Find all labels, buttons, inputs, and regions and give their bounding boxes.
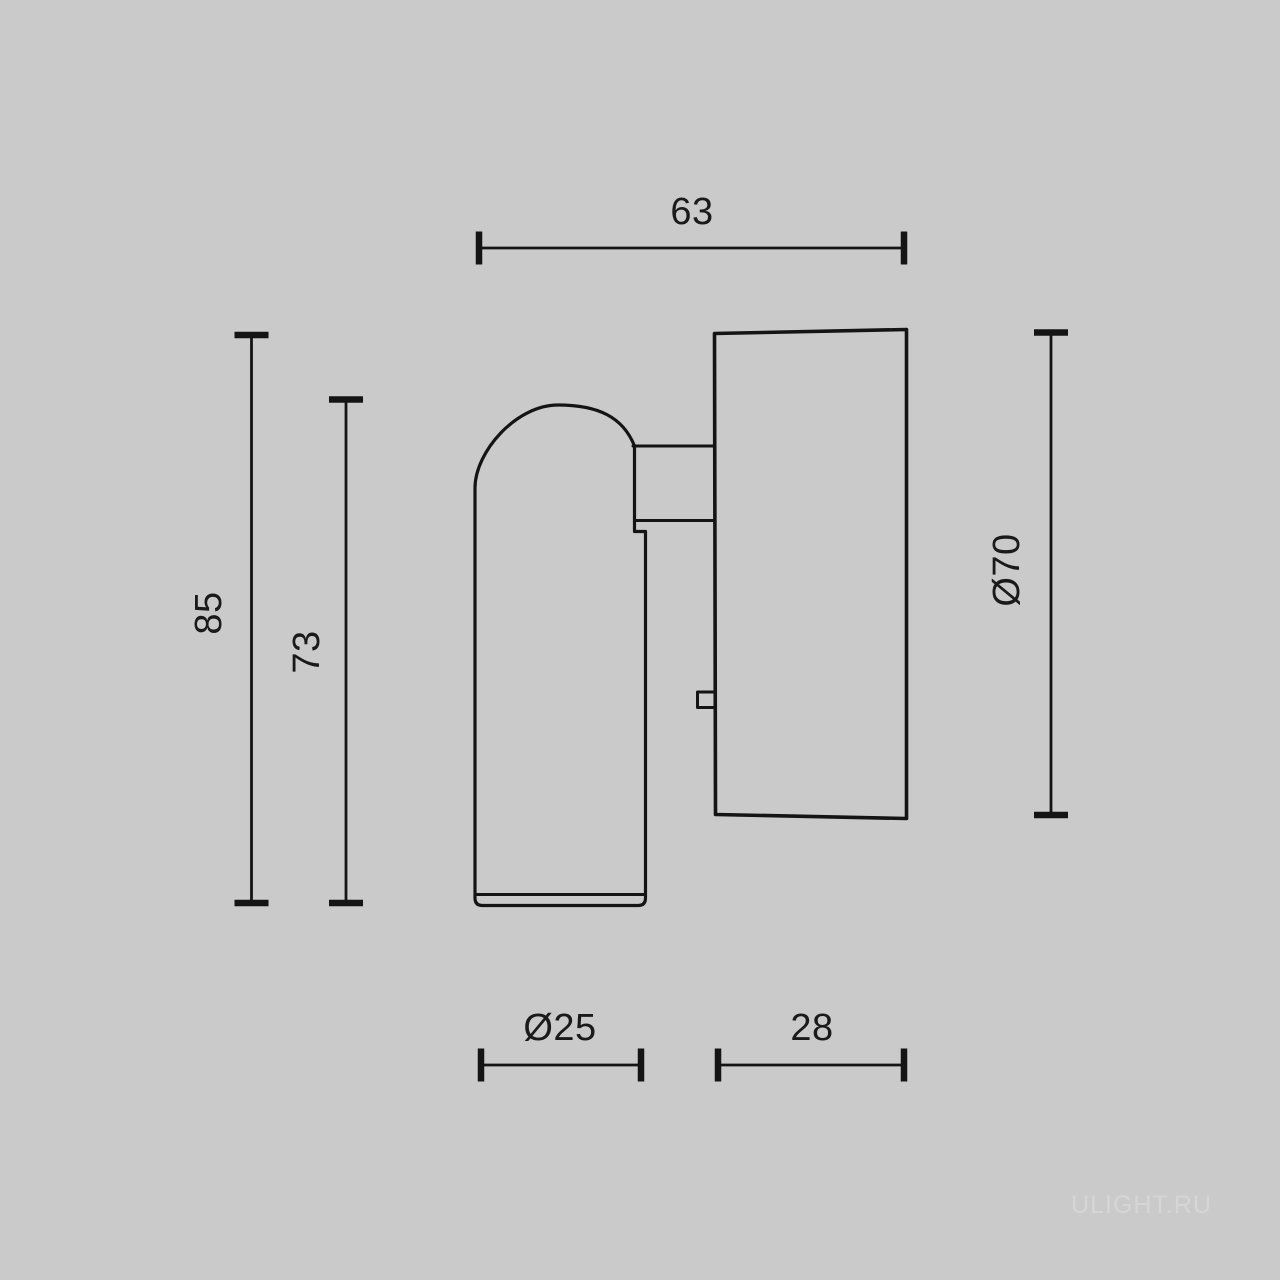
dimension-plate-diameter: Ø70	[986, 333, 1068, 816]
technical-drawing-page: 63 85 73 Ø70 Ø25	[0, 0, 1280, 1280]
dimension-label-73: 73	[286, 630, 328, 673]
dimension-label-d70: Ø70	[986, 533, 1028, 606]
dimension-top-width: 63	[479, 191, 904, 265]
dimension-plate-depth: 28	[718, 1007, 904, 1082]
dimension-label-63: 63	[670, 191, 713, 233]
dimension-label-28: 28	[790, 1007, 833, 1049]
switch-knob	[698, 692, 715, 708]
wall-plate-outline	[715, 330, 907, 819]
lamp-head-body	[475, 405, 646, 906]
dimension-overall-height: 85	[188, 335, 269, 903]
dimension-label-d25: Ø25	[523, 1007, 596, 1049]
lamp-head-outline	[475, 405, 646, 906]
dimension-label-85: 85	[188, 591, 230, 634]
lamp-dimension-drawing: 63 85 73 Ø70 Ø25	[0, 0, 1280, 1280]
dimension-head-height: 73	[286, 400, 363, 904]
watermark-text: ULIGHT.RU	[1071, 1191, 1212, 1219]
wall-plate	[698, 330, 907, 819]
dimension-head-diameter: Ø25	[481, 1007, 641, 1082]
pivot-arm	[633, 446, 715, 521]
